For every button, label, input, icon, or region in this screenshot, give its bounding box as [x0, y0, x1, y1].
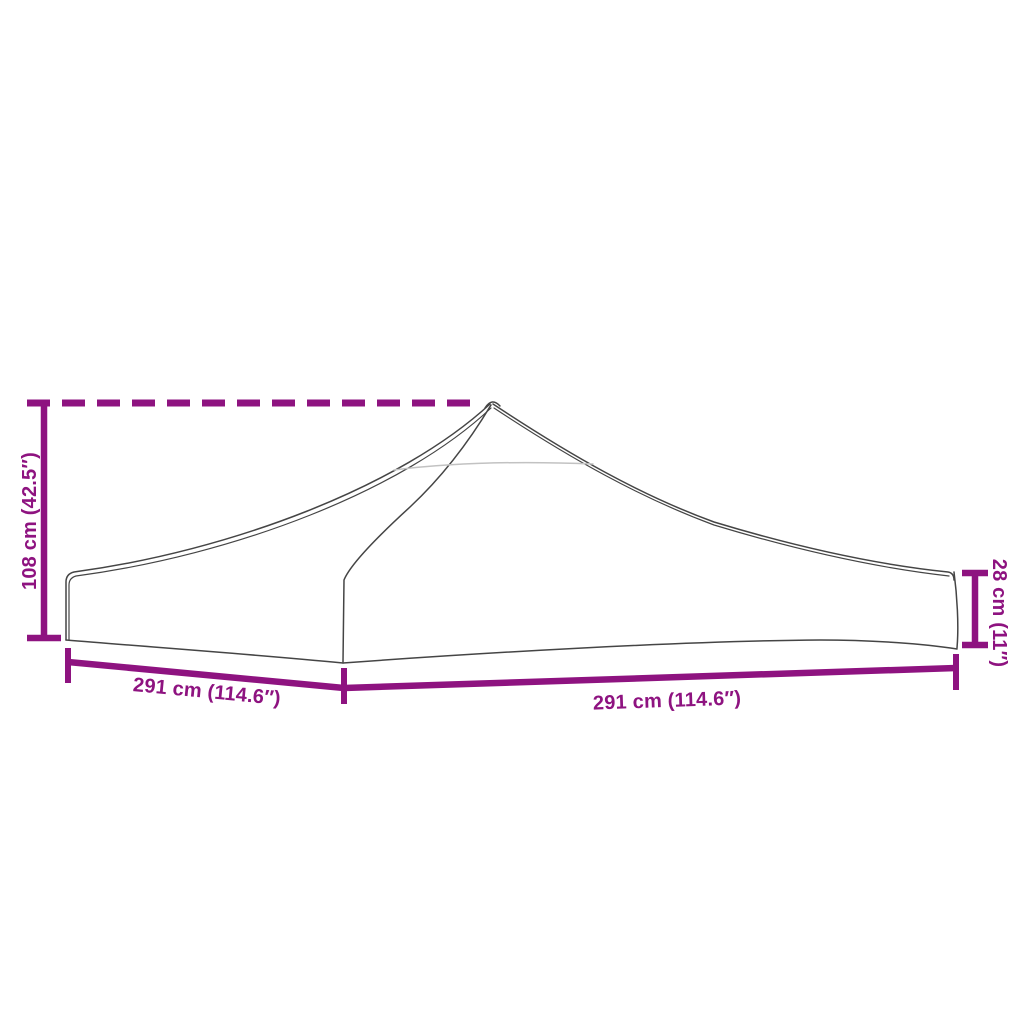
product-dimension-image: 108 cm (42.5″) 28 cm (11″) 291 cm (114.6…: [0, 0, 1024, 1024]
tent-center-seam: [343, 405, 491, 662]
edge-height-label: 28 cm (11″): [988, 559, 1010, 668]
dimension-width-right: 291 cm (114.6″): [344, 654, 956, 715]
tent-left-roof-edge-inner: [69, 408, 491, 640]
dimension-total-height: 108 cm (42.5″): [19, 403, 480, 641]
width-right-label: 291 cm (114.6″): [593, 687, 742, 714]
tent-right-roof-edge-outer: [493, 404, 954, 580]
tent-right-corner-edge: [954, 572, 958, 648]
tent-bottom-left-hem: [66, 640, 343, 663]
gazebo-canopy-dimension-diagram: 108 cm (42.5″) 28 cm (11″) 291 cm (114.6…: [0, 0, 1024, 1024]
tent-bottom-right-hem: [343, 640, 957, 663]
dimension-edge-height: 28 cm (11″): [962, 559, 1010, 668]
total-height-label: 108 cm (42.5″): [19, 452, 41, 590]
tent-right-roof-edge-inner: [494, 408, 949, 576]
tent-left-roof-edge-outer: [66, 404, 490, 640]
dimension-width-left: 291 cm (114.6″): [68, 648, 344, 710]
tent-outline: [66, 402, 958, 663]
width-right-dimension-line: [344, 668, 956, 688]
tent-rear-seam-faint: [394, 463, 593, 470]
